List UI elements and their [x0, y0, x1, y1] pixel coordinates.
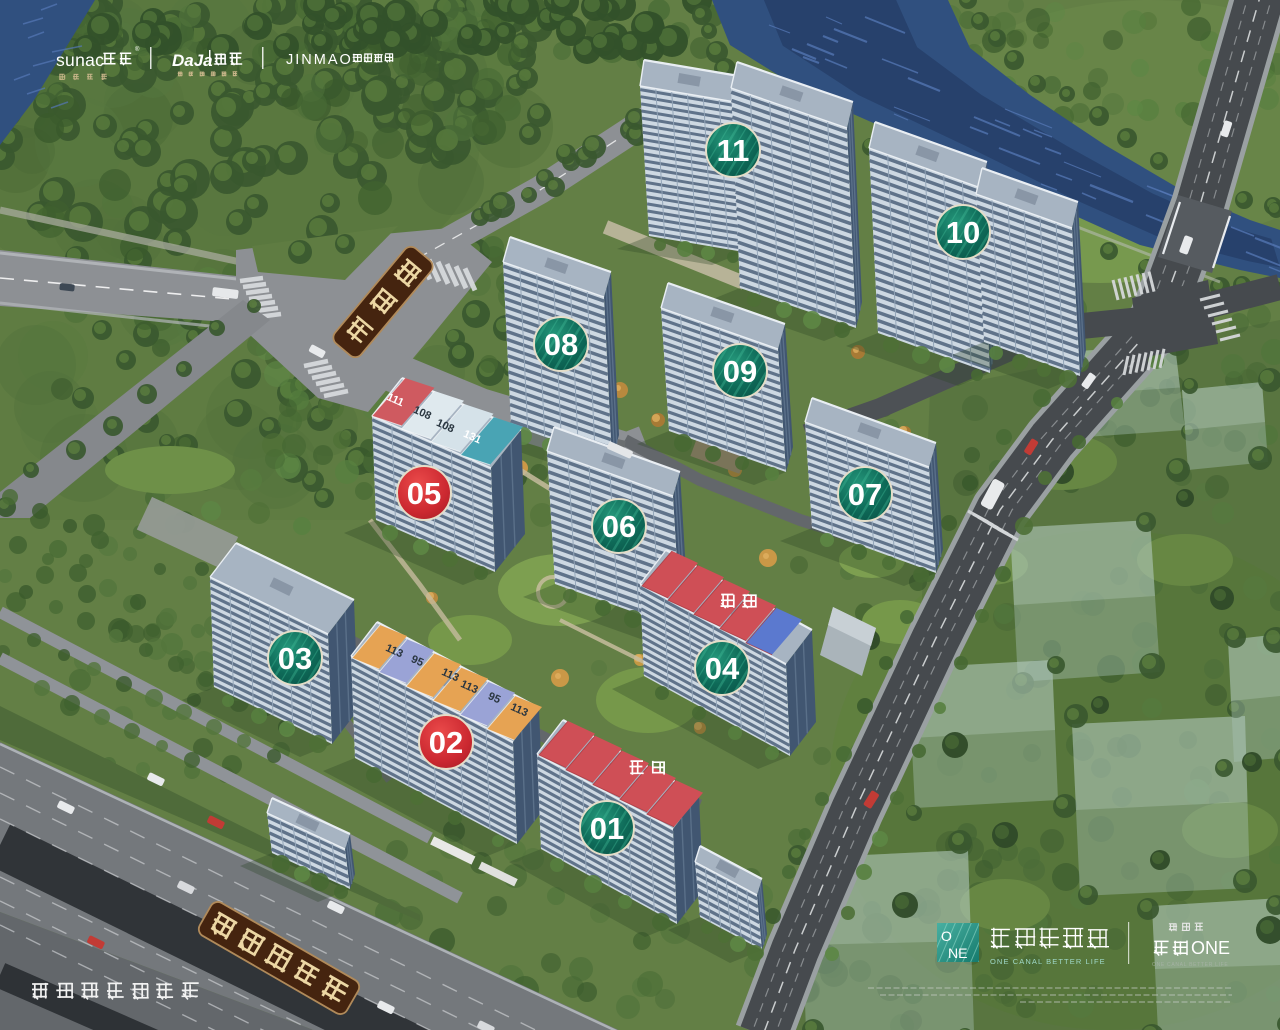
svg-text:®: ® [135, 46, 140, 53]
svg-text:07: 07 [848, 477, 882, 512]
svg-text:11: 11 [717, 133, 750, 168]
svg-text:sunac: sunac [56, 50, 104, 70]
svg-text:O: O [941, 928, 952, 944]
svg-text:10: 10 [946, 215, 980, 250]
svg-text:06: 06 [602, 509, 636, 544]
svg-text:01: 01 [590, 811, 624, 846]
svg-text:NE: NE [948, 945, 967, 961]
svg-text:02: 02 [429, 725, 463, 760]
svg-text:DaJa: DaJa [172, 51, 213, 70]
svg-text:03: 03 [278, 641, 312, 676]
svg-text:JINMAO: JINMAO [286, 52, 353, 68]
svg-text:08: 08 [544, 327, 578, 362]
svg-text:09: 09 [723, 354, 757, 389]
svg-text:05: 05 [407, 476, 441, 511]
svg-text:ONE CANAL BETTER LIFE: ONE CANAL BETTER LIFE [990, 957, 1106, 966]
svg-text:04: 04 [705, 651, 740, 686]
svg-text:ONE: ONE [1191, 938, 1230, 958]
svg-text:ONE CANAL BETTER LIFE: ONE CANAL BETTER LIFE [1152, 962, 1228, 968]
